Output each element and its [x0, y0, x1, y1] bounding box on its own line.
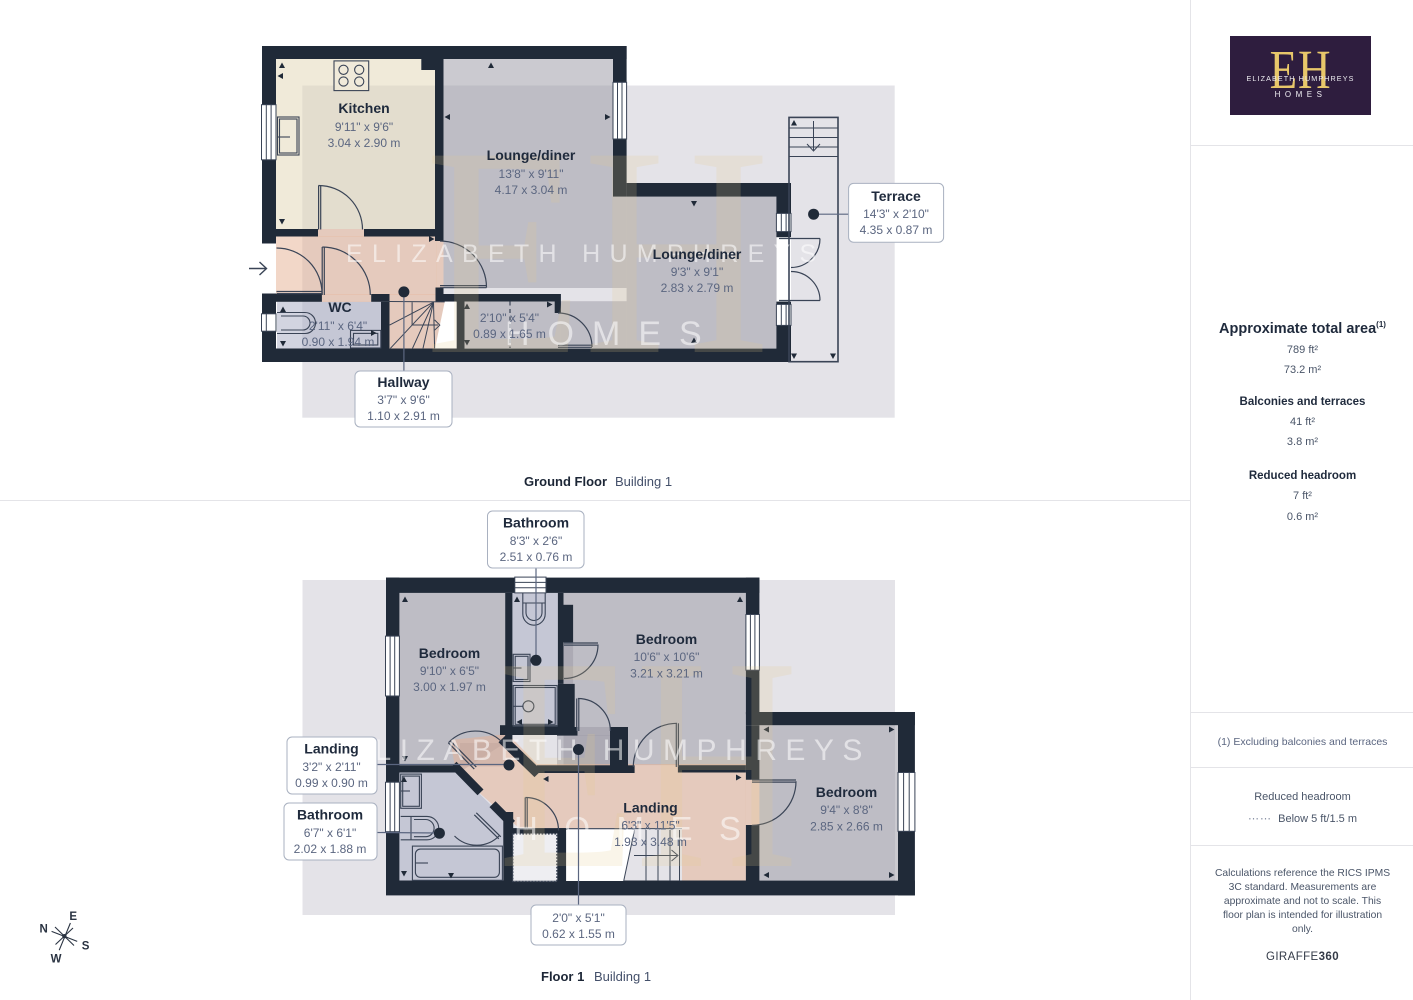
- svg-text:4.17 x 3.04 m: 4.17 x 3.04 m: [495, 183, 568, 197]
- svg-text:2'10" x 5'4": 2'10" x 5'4": [480, 311, 539, 325]
- svg-text:Terrace: Terrace: [871, 188, 921, 204]
- svg-text:2'11" x 6'4": 2'11" x 6'4": [309, 319, 367, 333]
- svg-text:Bedroom: Bedroom: [636, 631, 697, 647]
- svg-text:Landing: Landing: [623, 800, 677, 816]
- svg-text:3'2" x 2'11": 3'2" x 2'11": [302, 760, 360, 774]
- svg-text:2.83 x 2.79 m: 2.83 x 2.79 m: [661, 281, 734, 295]
- svg-text:3.04 x 2.90 m: 3.04 x 2.90 m: [328, 136, 401, 150]
- svg-text:9'4" x 8'8": 9'4" x 8'8": [820, 803, 872, 817]
- svg-text:2.85 x 2.66 m: 2.85 x 2.66 m: [810, 820, 883, 834]
- svg-text:Kitchen: Kitchen: [338, 100, 389, 116]
- svg-text:3.00 x 1.97 m: 3.00 x 1.97 m: [413, 680, 486, 694]
- svg-text:Bathroom: Bathroom: [297, 807, 363, 823]
- svg-text:6'7" x 6'1": 6'7" x 6'1": [304, 826, 356, 840]
- svg-text:3.21 x 3.21 m: 3.21 x 3.21 m: [630, 667, 703, 681]
- svg-text:0.90 x 1.94 m: 0.90 x 1.94 m: [302, 335, 375, 349]
- svg-text:10'6" x 10'6": 10'6" x 10'6": [634, 650, 700, 664]
- svg-text:1.10 x 2.91 m: 1.10 x 2.91 m: [367, 409, 440, 423]
- svg-text:Lounge/diner: Lounge/diner: [487, 147, 576, 163]
- svg-text:9'11" x 9'6": 9'11" x 9'6": [335, 120, 393, 134]
- svg-text:0.89 x 1.65 m: 0.89 x 1.65 m: [473, 327, 546, 341]
- svg-text:Hallway: Hallway: [377, 374, 429, 390]
- svg-text:0.99 x 0.90 m: 0.99 x 0.90 m: [295, 776, 368, 790]
- svg-text:ELIZABETH HUMPHREYS: ELIZABETH HUMPHREYS: [346, 240, 826, 268]
- svg-text:9'3" x 9'1": 9'3" x 9'1": [671, 265, 723, 279]
- svg-text:N: N: [39, 924, 47, 936]
- svg-text:S: S: [82, 941, 90, 953]
- svg-text:Building 1: Building 1: [615, 474, 672, 489]
- svg-text:6'3" x 11'5": 6'3" x 11'5": [621, 819, 679, 833]
- svg-text:Ground Floor: Ground Floor: [524, 474, 607, 489]
- svg-text:Floor 1: Floor 1: [541, 969, 584, 984]
- svg-text:WC: WC: [328, 299, 351, 315]
- svg-text:2.51 x 0.76 m: 2.51 x 0.76 m: [500, 550, 573, 564]
- svg-text:8'3" x 2'6": 8'3" x 2'6": [510, 534, 562, 548]
- svg-text:3'7" x 9'6": 3'7" x 9'6": [377, 393, 429, 407]
- svg-text:Bedroom: Bedroom: [419, 645, 480, 661]
- svg-text:4.35 x 0.87 m: 4.35 x 0.87 m: [860, 223, 933, 237]
- svg-text:13'8" x 9'11": 13'8" x 9'11": [499, 167, 564, 181]
- svg-text:Building 1: Building 1: [594, 969, 651, 984]
- svg-text:E: E: [69, 911, 77, 923]
- svg-text:Bedroom: Bedroom: [816, 784, 877, 800]
- svg-text:9'10" x 6'5": 9'10" x 6'5": [420, 664, 479, 678]
- svg-text:Lounge/diner: Lounge/diner: [653, 246, 742, 262]
- svg-text:Bathroom: Bathroom: [503, 515, 569, 531]
- svg-text:14'3" x 2'10": 14'3" x 2'10": [863, 207, 929, 221]
- svg-text:0.62 x 1.55 m: 0.62 x 1.55 m: [542, 927, 615, 941]
- svg-text:Landing: Landing: [304, 741, 358, 757]
- svg-text:1.93 x 3.48 m: 1.93 x 3.48 m: [614, 835, 687, 849]
- svg-text:ELIZABETH HUMPHREYS: ELIZABETH HUMPHREYS: [346, 734, 871, 767]
- svg-text:2.02 x 1.88 m: 2.02 x 1.88 m: [294, 842, 367, 856]
- svg-text:2'0" x 5'1": 2'0" x 5'1": [552, 911, 604, 925]
- svg-text:W: W: [51, 953, 62, 965]
